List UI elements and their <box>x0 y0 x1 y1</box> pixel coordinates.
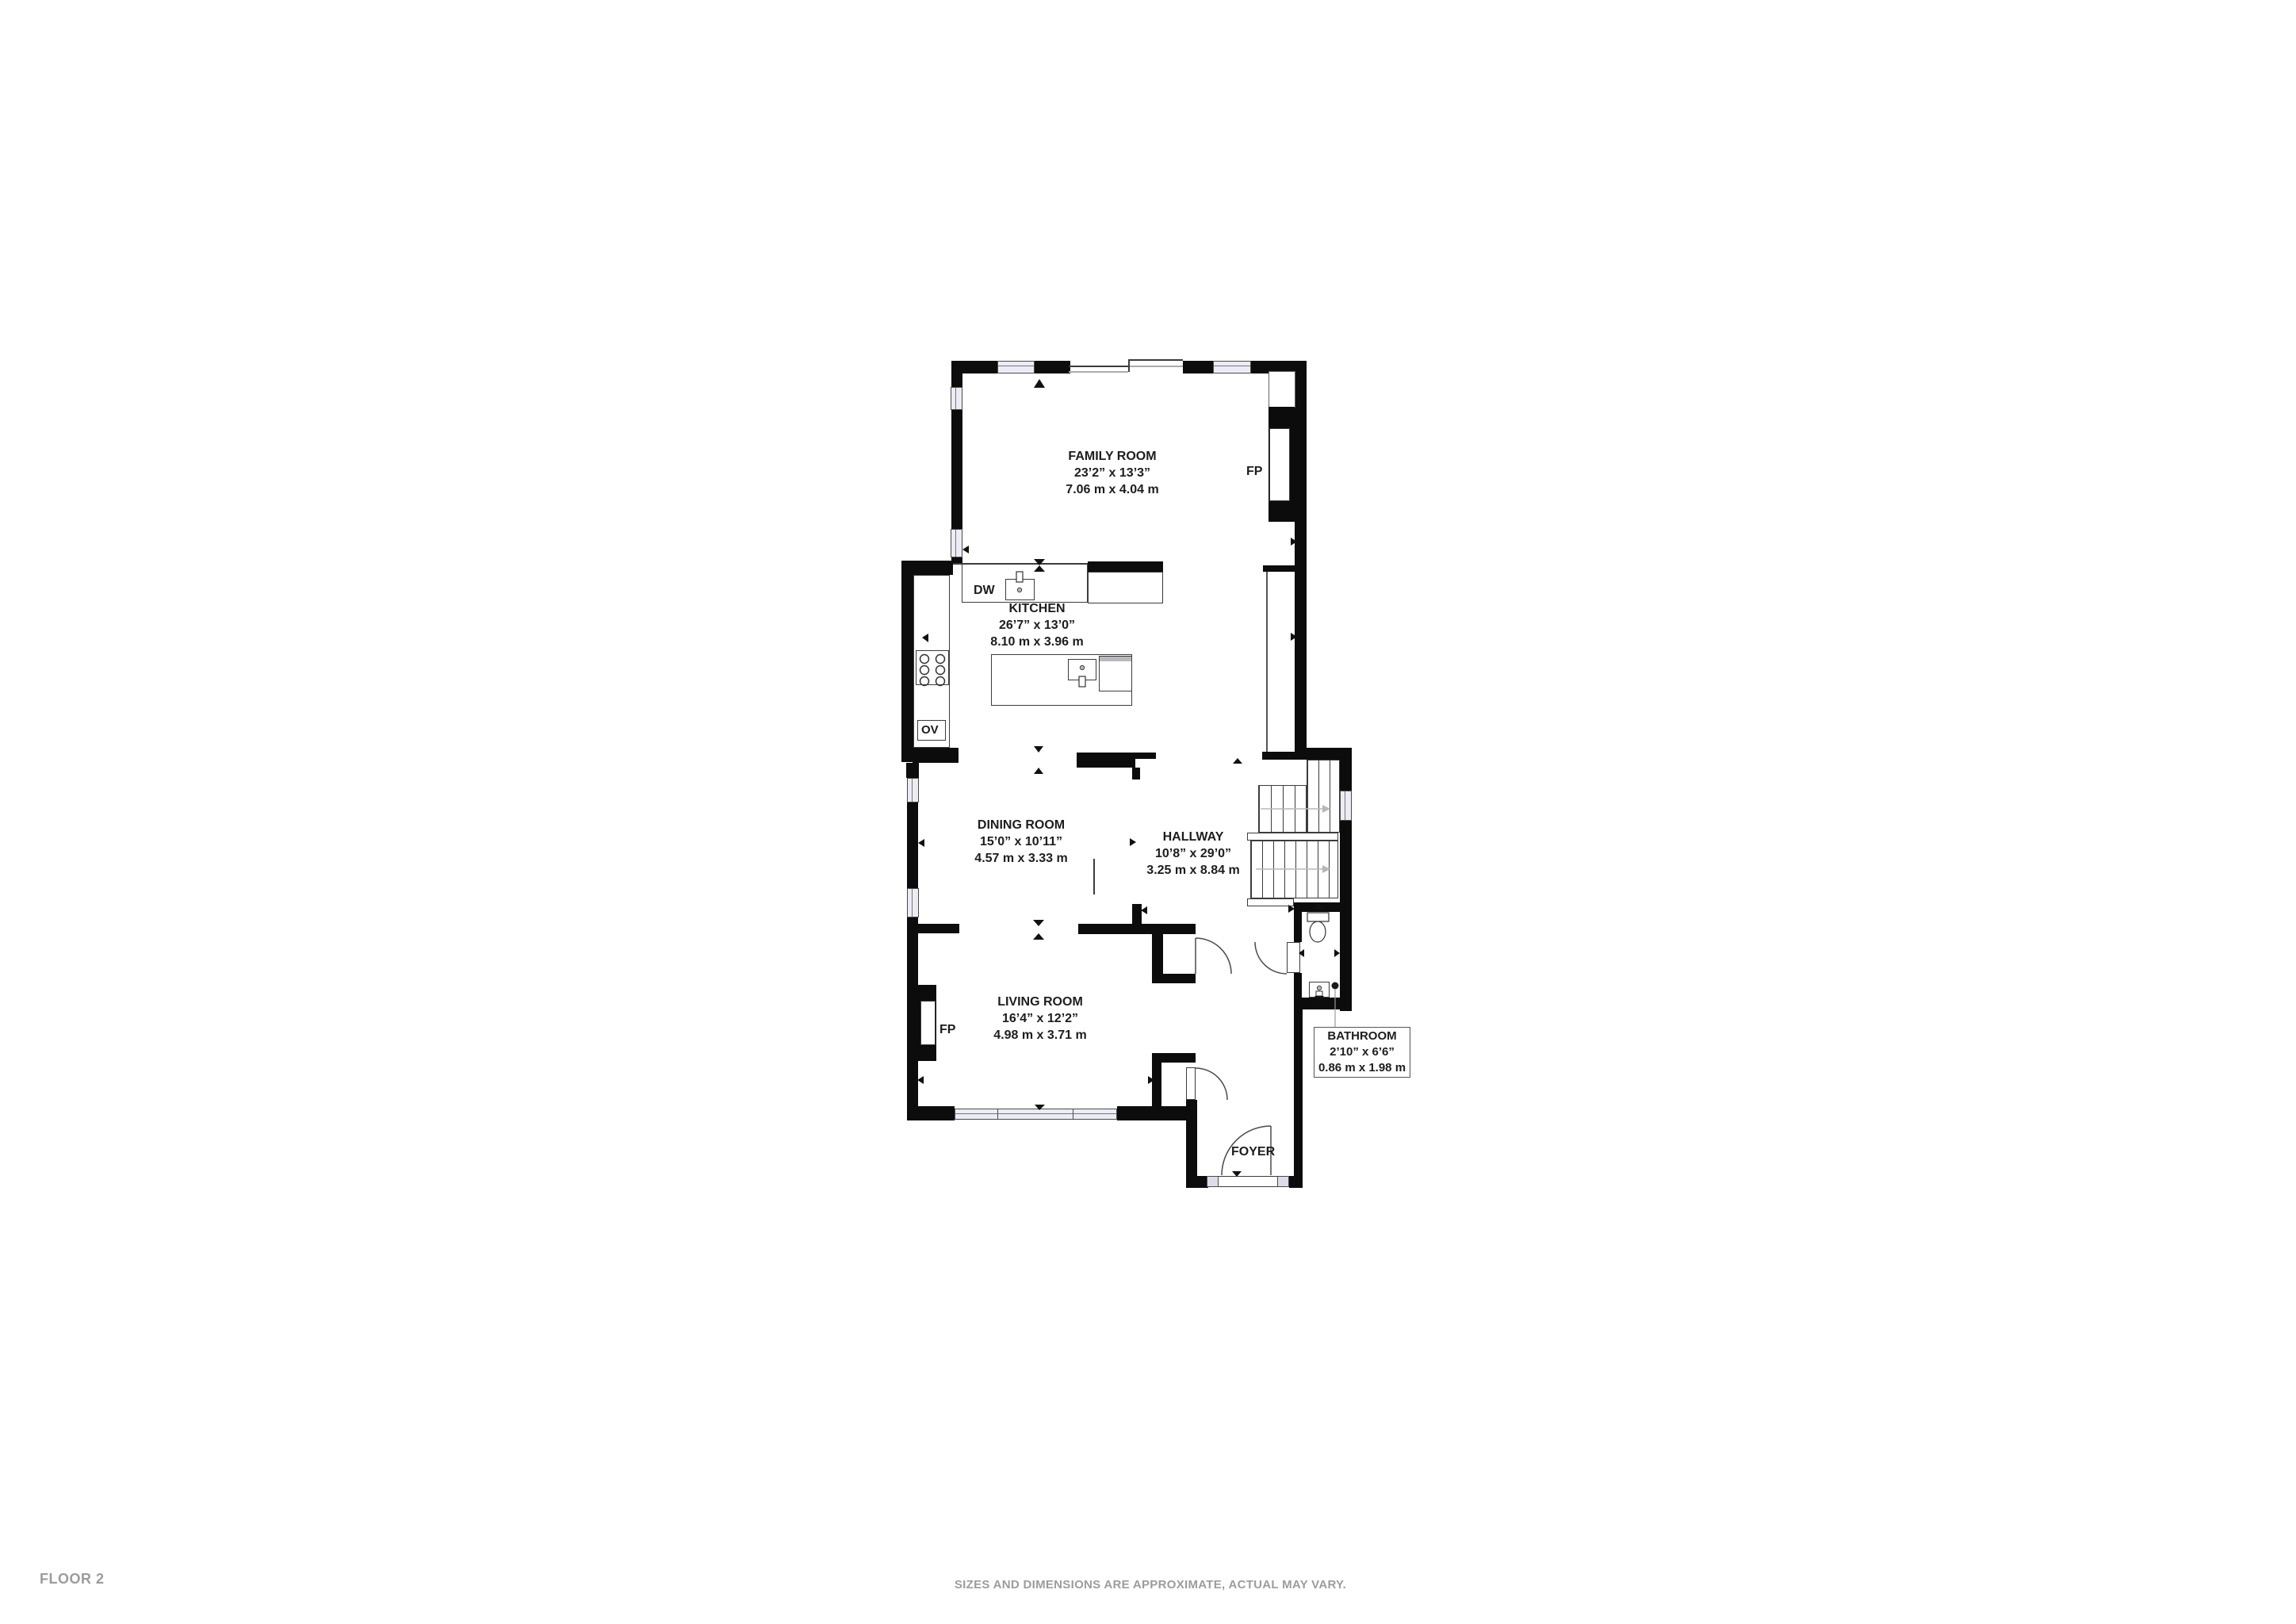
bay-outline <box>1128 359 1183 361</box>
bay-outline <box>1069 371 1128 373</box>
bathroom-label: BATHROOM 2’10” x 6’6” 0.86 m x 1.98 m <box>1314 1027 1410 1078</box>
island-bar-top <box>1100 657 1131 661</box>
room-dim-metric: 0.86 m x 1.98 m <box>1314 1060 1410 1076</box>
wall <box>1295 361 1307 522</box>
floor-plan: FAMILY ROOM 23’2” x 13’3” 7.06 m x 4.04 … <box>0 0 2296 1624</box>
room-dim-imperial: 26’7” x 13’0” <box>990 617 1083 634</box>
room-name: KITCHEN <box>990 600 1083 617</box>
wall <box>1135 753 1156 759</box>
window <box>997 1109 1073 1120</box>
entry-post <box>1277 1176 1289 1187</box>
wall <box>1152 934 1163 983</box>
fireplace-icon <box>1269 428 1290 501</box>
window <box>951 387 962 410</box>
wall <box>1077 753 1135 768</box>
door-leaf <box>1287 942 1300 973</box>
wall <box>1186 1100 1197 1188</box>
living-room-label: LIVING ROOM 16’4” x 12’2” 4.98 m x 3.71 … <box>993 994 1086 1044</box>
wall <box>1152 1053 1161 1106</box>
wall <box>1302 748 1352 760</box>
window <box>907 888 919 917</box>
bay-outline <box>1128 359 1130 372</box>
wall <box>951 373 962 387</box>
wall <box>1294 973 1302 998</box>
toilet-icon <box>1307 913 1329 942</box>
wall <box>951 361 997 373</box>
kitchen-label: KITCHEN 26’7” x 13’0” 8.10 m x 3.96 m <box>990 600 1083 650</box>
fireplace-label: FP <box>1246 465 1262 479</box>
stairs-upper-flight <box>1258 785 1307 833</box>
wall <box>907 933 918 1106</box>
wall <box>1263 565 1307 572</box>
wall <box>1295 522 1307 752</box>
wall <box>1161 1053 1196 1063</box>
stove-icon <box>916 650 949 685</box>
wall <box>1294 912 1302 942</box>
room-dim-imperial: 15’0” x 10’11” <box>974 833 1067 850</box>
room-dim-metric: 4.57 m x 3.33 m <box>974 850 1067 867</box>
dining-room-label: DINING ROOM 15’0” x 10’11” 4.57 m x 3.33… <box>974 817 1067 867</box>
room-dim-metric: 3.25 m x 8.84 m <box>1146 862 1239 879</box>
chase-edge <box>1266 572 1268 752</box>
entry-post <box>1207 1176 1219 1187</box>
window <box>955 1109 998 1120</box>
room-dim-metric: 7.06 m x 4.04 m <box>1066 481 1158 498</box>
oven-label: OV <box>921 723 939 737</box>
wall <box>906 763 919 778</box>
window <box>997 361 1035 373</box>
wall <box>907 924 959 933</box>
stairs-landing <box>1247 833 1338 841</box>
door-arc <box>1255 942 1287 974</box>
wall <box>1035 361 1070 373</box>
sink-icon <box>1068 659 1096 680</box>
room-dim-imperial: 23’2” x 13’3” <box>1066 465 1158 481</box>
wall <box>1183 361 1213 373</box>
wall <box>1294 1009 1303 1188</box>
door-arcs <box>1196 938 1287 1175</box>
window <box>951 529 962 557</box>
window <box>1340 791 1352 821</box>
window <box>907 778 919 802</box>
room-name: BATHROOM <box>1314 1028 1410 1044</box>
room-dim-metric: 4.98 m x 3.71 m <box>993 1027 1086 1044</box>
door-arc <box>1196 1068 1227 1100</box>
sink-icon <box>1005 579 1035 600</box>
wall <box>1088 561 1163 572</box>
wall <box>1262 752 1302 760</box>
foyer-label: FOYER <box>1231 1145 1275 1159</box>
room-dim-imperial: 2’10” x 6’6” <box>1314 1044 1410 1060</box>
hallway-label: HALLWAY 10’8” x 29’0” 3.25 m x 8.84 m <box>1146 829 1239 879</box>
floor-label: FLOOR 2 <box>40 1571 105 1588</box>
wall <box>1117 1106 1186 1120</box>
wall <box>1186 1176 1208 1188</box>
door-leaf <box>1186 1067 1196 1100</box>
fireplace-icon <box>920 1001 936 1045</box>
door-arc <box>1196 938 1231 974</box>
room-name: HALLWAY <box>1146 829 1239 845</box>
wall <box>1132 768 1140 779</box>
room-dim-imperial: 16’4” x 12’2” <box>993 1010 1086 1027</box>
room-dim-imperial: 10’8” x 29’0” <box>1146 845 1239 862</box>
stairs-lower-flight <box>1250 841 1338 898</box>
wall <box>913 748 959 763</box>
window <box>1073 1109 1117 1120</box>
bay-outline <box>1128 366 1183 367</box>
stairs-edge <box>1247 898 1294 906</box>
wall <box>907 802 918 888</box>
room-name: FAMILY ROOM <box>1066 448 1158 465</box>
wall <box>1294 998 1341 1009</box>
sink-icon <box>1309 982 1330 998</box>
wall <box>951 410 962 529</box>
family-room-label: FAMILY ROOM 23’2” x 13’3” 7.06 m x 4.04 … <box>1066 448 1158 498</box>
disclaimer-text: SIZES AND DIMENSIONS ARE APPROXIMATE, AC… <box>955 1578 1346 1591</box>
fireplace-label: FP <box>939 1023 955 1037</box>
room-name: LIVING ROOM <box>993 994 1086 1010</box>
room-dim-metric: 8.10 m x 3.96 m <box>990 634 1083 650</box>
wall <box>907 1106 955 1120</box>
dishwasher-label: DW <box>974 584 995 598</box>
divider-line <box>1093 859 1095 894</box>
bay-outline <box>1069 366 1128 367</box>
wall <box>1163 974 1196 983</box>
wall <box>1294 902 1341 912</box>
stairs-winder <box>1307 760 1340 833</box>
wall <box>901 561 913 762</box>
window <box>1213 361 1251 373</box>
room-name: DINING ROOM <box>974 817 1067 833</box>
plan-symbols <box>0 0 2296 1624</box>
wall <box>1078 924 1196 934</box>
wall-niche <box>1269 371 1295 408</box>
wall <box>1132 904 1142 925</box>
kitchen-cabinet <box>1088 572 1163 603</box>
